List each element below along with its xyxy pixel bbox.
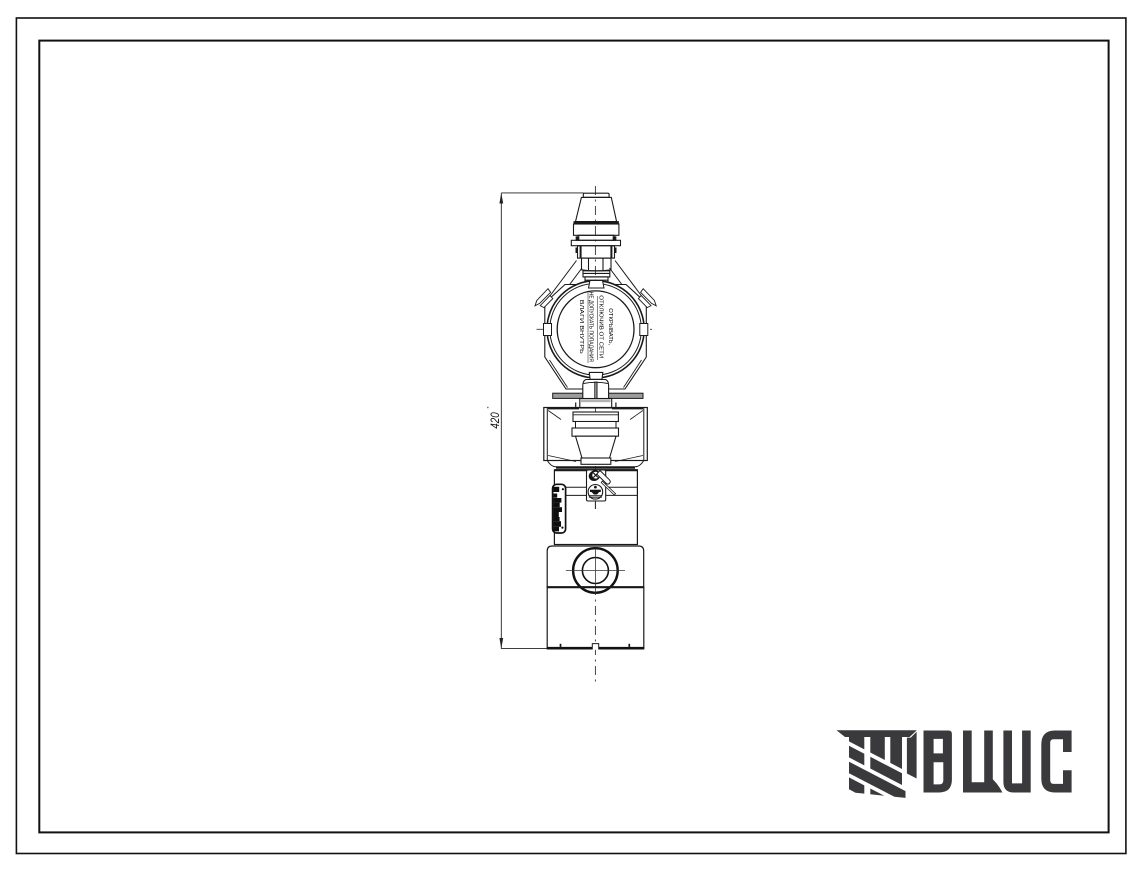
svg-text:НЕ ДОПУСКАТЬ ПОПАДАНИЯ: НЕ ДОПУСКАТЬ ПОПАДАНИЯ bbox=[588, 292, 594, 362]
svg-text:420: 420 bbox=[488, 412, 502, 429]
svg-text:ВЛАГИ ВНУТРЬ: ВЛАГИ ВНУТРЬ bbox=[578, 300, 584, 355]
svg-text:ОТКРЫВАТЬ,: ОТКРЫВАТЬ, bbox=[607, 308, 613, 345]
svg-text:ОТКЛЮЧИВ ОТ СЕТИ: ОТКЛЮЧИВ ОТ СЕТИ bbox=[597, 295, 603, 358]
